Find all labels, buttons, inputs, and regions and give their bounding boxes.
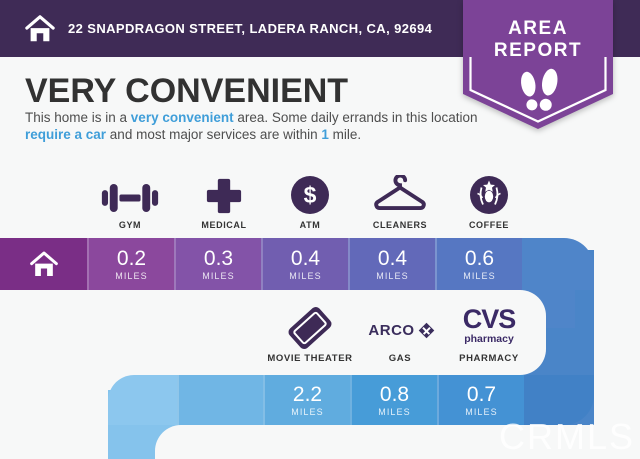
- poi-label: GYM: [119, 220, 141, 230]
- distance-unit: MILES: [202, 271, 235, 281]
- home-icon: [29, 250, 59, 279]
- desc-segment: and most major services are within: [106, 127, 321, 142]
- distance-value: 0.4: [291, 248, 320, 269]
- distance-unit: MILES: [378, 407, 411, 417]
- desc-highlight: 1: [321, 127, 329, 142]
- poi-label: CLEANERS: [373, 220, 427, 230]
- crmls-watermark: CRMLS: [499, 416, 635, 458]
- poi-label: ATM: [300, 220, 321, 230]
- distance-unit: MILES: [289, 271, 322, 281]
- poi-movie-theater: [288, 306, 332, 350]
- distance-cell-coffee: 0.6 MILES: [435, 238, 522, 290]
- bar1-tail: [522, 238, 594, 290]
- dollar-circle-icon: $: [290, 175, 330, 215]
- badge-title-line2: REPORT: [463, 40, 613, 62]
- medical-cross-icon: [205, 177, 243, 215]
- distance-cell-movie-theater: 2.2 MILES: [263, 375, 350, 425]
- home-icon: [24, 14, 56, 44]
- distance-value: 0.3: [204, 248, 233, 269]
- desc-segment: This home is in a: [25, 110, 131, 125]
- cvs-logo: CVS pharmacy: [439, 306, 539, 345]
- desc-segment: mile.: [329, 127, 361, 142]
- svg-text:$: $: [304, 182, 317, 208]
- arco-wordmark: ARCO: [368, 322, 414, 339]
- poi-cleaners: CLEANERS: [350, 168, 450, 230]
- poi-label-pharmacy: PHARMACY: [429, 353, 549, 364]
- distance-value: 0.2: [117, 248, 146, 269]
- distance-cell-atm: 0.4 MILES: [261, 238, 348, 290]
- dumbbell-icon: [101, 181, 159, 215]
- poi-coffee: COFFEE: [439, 168, 539, 230]
- poi-medical: MEDICAL: [174, 168, 274, 230]
- distance-unit: MILES: [376, 271, 409, 281]
- property-address: 22 SNAPDRAGON STREET, LADERA RANCH, CA, …: [68, 21, 432, 36]
- distance-value: 0.6: [465, 248, 494, 269]
- distance-cell-cleaners: 0.4 MILES: [348, 238, 435, 290]
- desc-segment: area. Some daily errands in this locatio…: [234, 110, 478, 125]
- distance-unit: MILES: [291, 407, 324, 417]
- bar1-home-segment: [0, 238, 87, 290]
- area-report-page: 22 SNAPDRAGON STREET, LADERA RANCH, CA, …: [0, 0, 640, 459]
- area-report-badge: AREA REPORT: [463, 0, 613, 134]
- cvs-pharmacy-text: pharmacy: [439, 334, 539, 345]
- desc-highlight: require a car: [25, 127, 106, 142]
- starbucks-siren-icon: [469, 175, 509, 215]
- bar2-blank-segment: [177, 375, 263, 425]
- distance-cell-gas: 0.8 MILES: [350, 375, 437, 425]
- distance-unit: MILES: [115, 271, 148, 281]
- footprints-icon: [509, 68, 567, 120]
- poi-atm: $ ATM: [260, 168, 360, 230]
- distance-value: 2.2: [293, 384, 322, 405]
- poi-label: COFFEE: [469, 220, 509, 230]
- description-text: This home is in a very convenient area. …: [25, 110, 483, 143]
- distance-cell-gym: 0.2 MILES: [87, 238, 174, 290]
- distance-cell-medical: 0.3 MILES: [174, 238, 261, 290]
- movie-ticket-icon: [286, 305, 333, 351]
- cvs-wordmark: CVS: [439, 306, 539, 333]
- distance-value: 0.7: [467, 384, 496, 405]
- arco-spark-icon: [418, 323, 434, 339]
- desc-highlight: very convenient: [131, 110, 234, 125]
- distance-value: 0.8: [380, 384, 409, 405]
- page-title: VERY CONVENIENT: [25, 72, 348, 111]
- badge-title-line1: AREA: [463, 18, 613, 40]
- arco-logo: ARCO: [350, 322, 450, 339]
- distance-unit: MILES: [465, 407, 498, 417]
- bar2-elbow: [108, 375, 177, 425]
- poi-label: MEDICAL: [201, 220, 246, 230]
- distance-value: 0.4: [378, 248, 407, 269]
- poi-gym: GYM: [80, 168, 180, 230]
- hanger-icon: [372, 175, 428, 215]
- distance-unit: MILES: [463, 271, 496, 281]
